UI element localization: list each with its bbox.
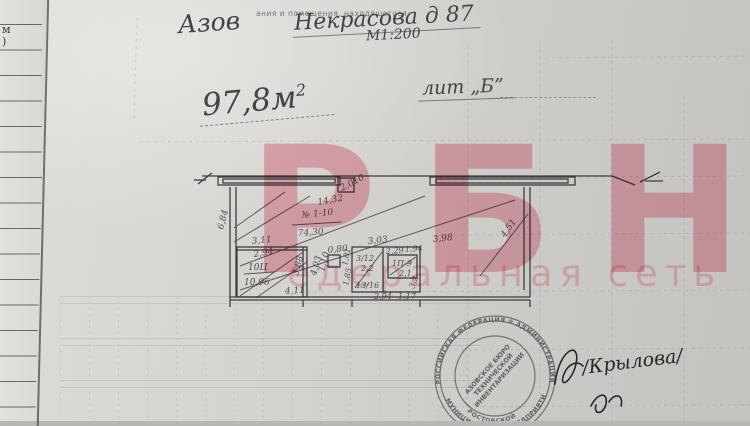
signature: /Крылова/ bbox=[533, 328, 683, 421]
city-handwriting: Азов bbox=[177, 6, 241, 39]
dim-label: 2,29 bbox=[385, 246, 404, 256]
room-area-label: 2,2 bbox=[360, 264, 374, 273]
liter-underline-extension bbox=[500, 97, 596, 98]
room-area-label: 2,1 bbox=[398, 269, 412, 278]
room-number-label: 1П-9 bbox=[392, 259, 412, 268]
room-number-label: 10Ц bbox=[248, 263, 268, 273]
dim-label: 3,88 bbox=[291, 255, 306, 277]
dim-label: 3,11 bbox=[251, 235, 272, 247]
area-superscript: 2 bbox=[295, 80, 307, 100]
dim-label: 3,98 bbox=[432, 233, 453, 245]
dim-label: 4,11 bbox=[284, 286, 306, 297]
liter-handwriting: лит „Б” bbox=[418, 74, 515, 101]
dim-label: 1,17 bbox=[398, 292, 417, 301]
dim-label: 2,94 bbox=[373, 292, 392, 301]
room-number-label: № 1-10 bbox=[300, 208, 334, 221]
dim-label: 1,94 bbox=[405, 244, 423, 254]
dim-label: 1,10 bbox=[317, 251, 332, 273]
plan-dimension-labels: 14,32 № 1-10 74,30 6,84 2,010 4,51 3,11 … bbox=[216, 173, 519, 301]
room-number-label: 3/12 bbox=[356, 254, 374, 263]
stamp-center-text: АЗОВСКОЕ БЮРО ТЕХНИЧЕСКОЙ ИНВЕНТАРИЗАЦИИ bbox=[461, 340, 526, 409]
dim-label: 2,94 bbox=[252, 247, 275, 261]
scale-handwriting: М1:200 bbox=[366, 26, 421, 45]
room-area-label: 10,96 bbox=[244, 278, 270, 288]
area-value: 97,8м bbox=[201, 79, 299, 123]
dim-label: 3,03 bbox=[367, 235, 388, 247]
signature-name: /Крылова/ bbox=[579, 345, 683, 380]
scanned-floor-plan-document: { "page": { "margin_fragments": { "f1": … bbox=[0, 0, 750, 421]
room-area-label: 74,30 bbox=[298, 227, 325, 239]
dim-label: 14,32 bbox=[317, 194, 344, 208]
dim-label: 6,84 bbox=[216, 209, 231, 231]
room-number-label: 13/16 bbox=[356, 281, 379, 290]
floor-plan-drawing: 14,32 № 1-10 74,30 6,84 2,010 4,51 3,11 … bbox=[190, 158, 670, 330]
